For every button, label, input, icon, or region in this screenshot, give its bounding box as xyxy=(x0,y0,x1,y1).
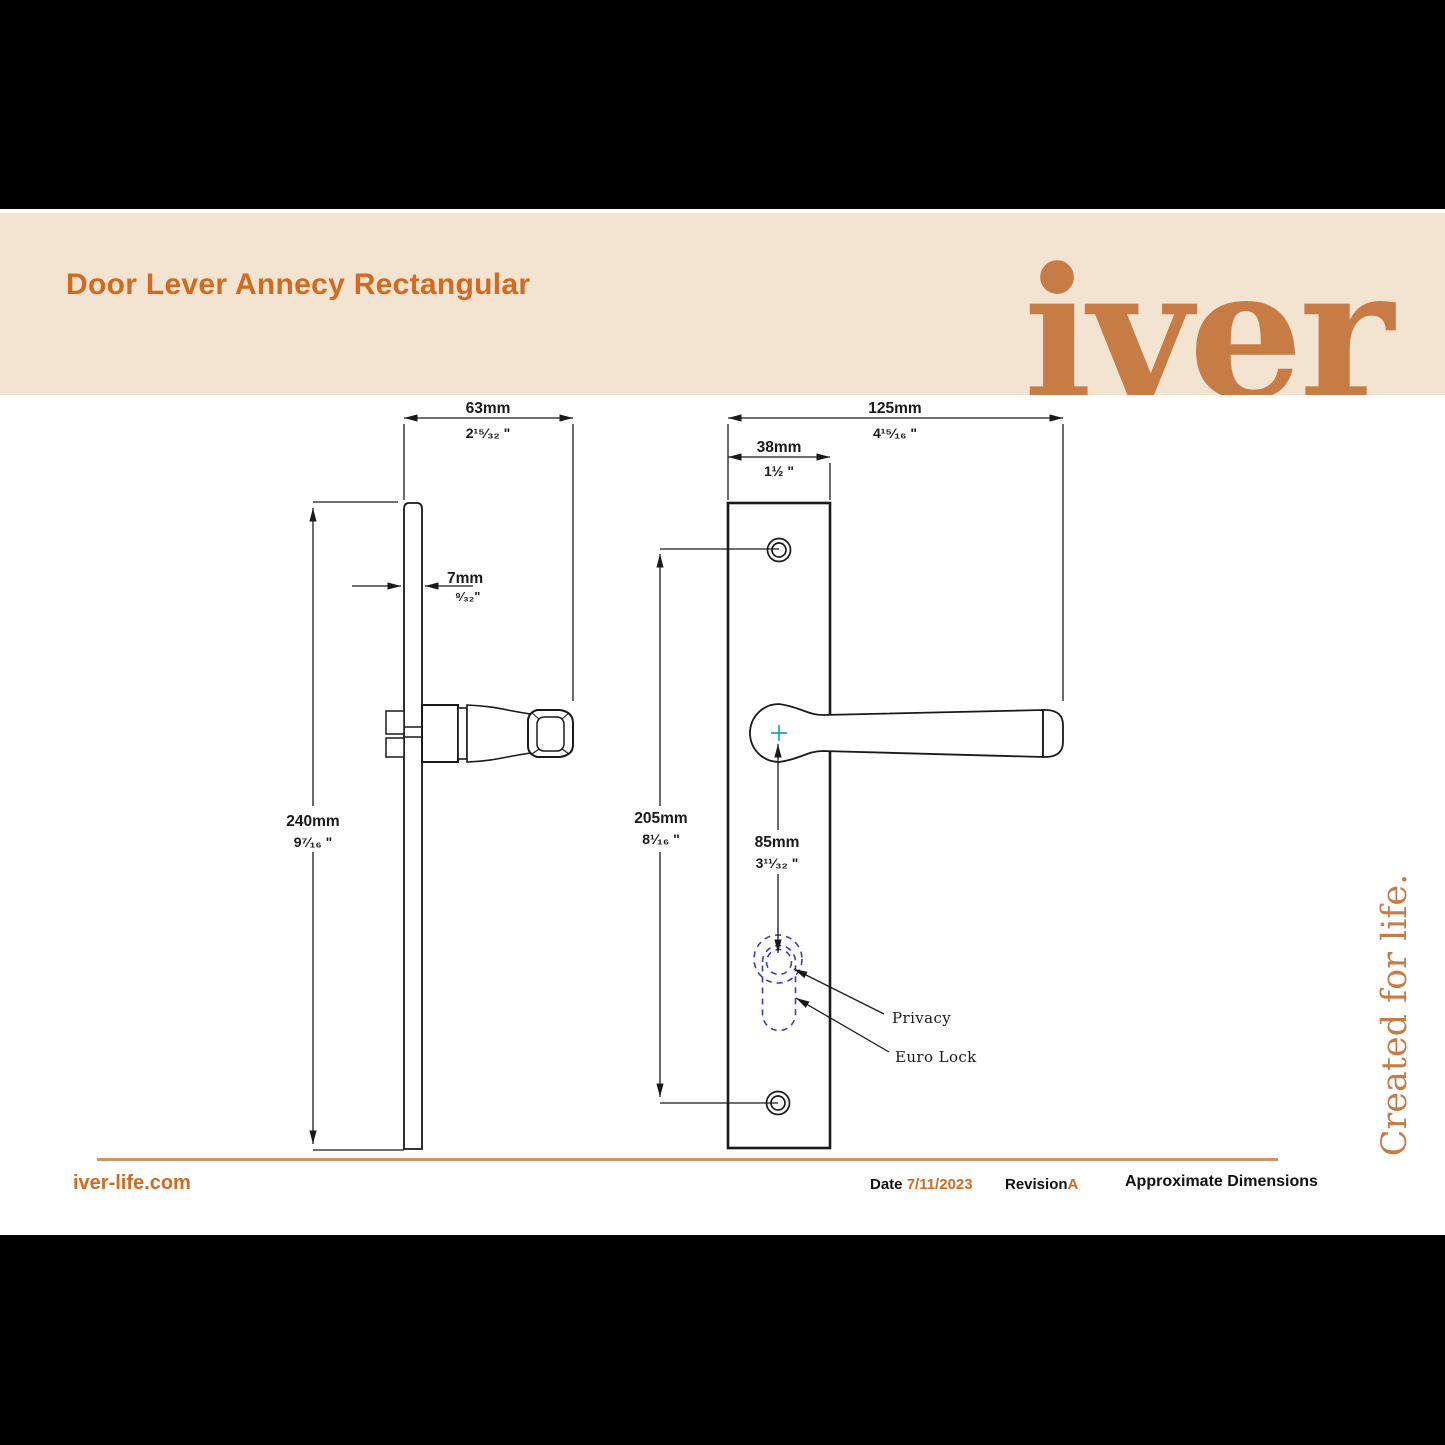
page-title: Door Lever Annecy Rectangular xyxy=(66,268,530,302)
lever-end-cap xyxy=(1043,710,1063,757)
dim-125-mm: 125mm xyxy=(868,400,921,417)
dim-205-in: 8¹⁄₁₆ " xyxy=(642,831,679,847)
dim-63-in: 2¹⁵⁄₃₂ " xyxy=(466,425,511,441)
lever-neck-side xyxy=(467,705,531,762)
dim-7-mm: 7mm xyxy=(447,570,483,587)
lever-collar-side xyxy=(458,708,467,759)
dim-240-in: 9⁷⁄₁₆ " xyxy=(294,834,333,850)
dim-63-mm: 63mm xyxy=(466,400,511,417)
dim-125-in: 4¹⁵⁄₁₆ " xyxy=(873,425,917,441)
technical-drawing: 63mm 2¹⁵⁄₃₂ " 7mm ⁹⁄₃₂" 240mm 9⁷⁄₁₆ " 12… xyxy=(0,0,1445,1445)
dim-85-in: 3¹¹⁄₃₂ " xyxy=(756,855,799,871)
dim-38-in: 1½ " xyxy=(764,463,794,479)
backplate-side xyxy=(404,503,422,1149)
backplate-front xyxy=(728,503,830,1148)
dim-85-mm: 85mm xyxy=(755,834,800,851)
dimension-lines xyxy=(313,418,1063,1150)
dim-7-in: ⁹⁄₃₂" xyxy=(455,590,480,604)
dim-38-mm: 38mm xyxy=(757,439,802,456)
dim-240-mm: 240mm xyxy=(286,813,339,830)
spec-sheet-page: iver Door Lever Annecy Rectangular xyxy=(0,0,1445,1445)
lever-front xyxy=(750,704,1043,762)
rose-block-side xyxy=(422,705,458,762)
euro-lock-label: Euro Lock xyxy=(895,1048,977,1066)
dim-205-mm: 205mm xyxy=(634,810,687,827)
privacy-label: Privacy xyxy=(892,1009,951,1027)
